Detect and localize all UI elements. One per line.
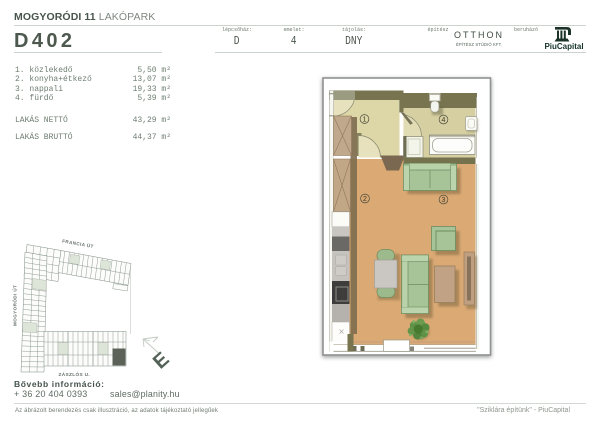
svg-text:1: 1 [363,117,367,124]
svg-text:FRANCIA ÚT: FRANCIA ÚT [62,238,94,249]
svg-text:MOGYORÓDI ÚT: MOGYORÓDI ÚT [11,285,18,326]
svg-text:4: 4 [442,117,446,124]
svg-text:ZÁSZLÓS U.: ZÁSZLÓS U. [59,370,91,378]
svg-text:3: 3 [442,197,446,204]
svg-text:E: E [149,348,174,373]
svg-text:2: 2 [363,196,367,203]
